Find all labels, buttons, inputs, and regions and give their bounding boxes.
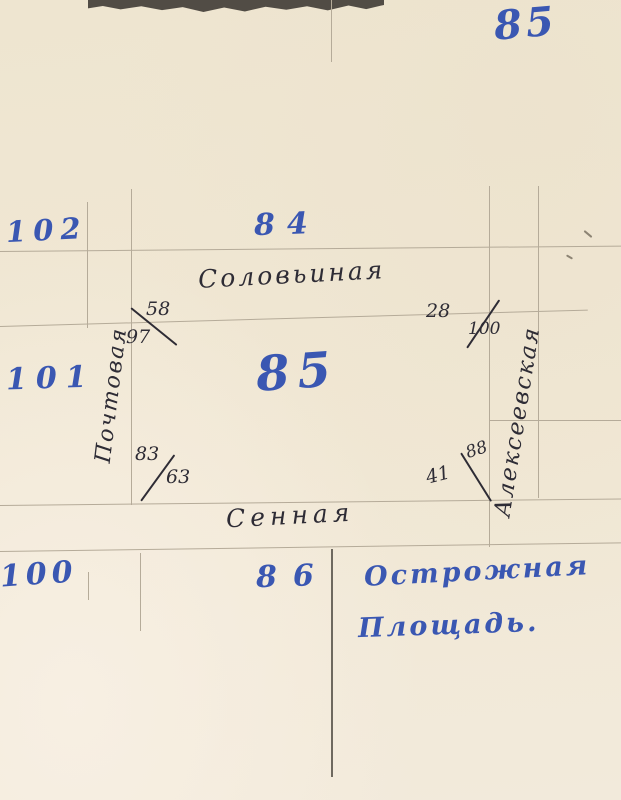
corner-number-28: 28 xyxy=(426,302,450,321)
corner-number-97: 97 xyxy=(126,328,150,347)
pencil-speck-right-2 xyxy=(566,254,573,259)
pencil-line-horizontal-below-sennaya xyxy=(0,542,621,552)
scanned-page: 85 102 84 101 85 100 86 Острожная Площад… xyxy=(0,0,621,800)
block-number-100: 100 xyxy=(0,557,79,592)
corner-number-41: 41 xyxy=(424,463,452,487)
corner-number-58: 58 xyxy=(146,300,170,319)
corner-number-100: 100 xyxy=(468,321,500,338)
corner-number-88: 88 xyxy=(464,439,490,462)
block-number-84: 84 xyxy=(253,209,320,241)
pencil-line-vertical-bottom-center-dark xyxy=(331,549,333,777)
pencil-speck-right-1 xyxy=(584,230,593,238)
page-number: 85 xyxy=(492,1,559,46)
pencil-line-horizontal-top xyxy=(0,246,621,252)
block-number-102: 102 xyxy=(5,214,88,247)
block-number-101: 101 xyxy=(6,362,97,395)
block-number-85-center: 85 xyxy=(254,345,340,399)
block-number-86: 86 xyxy=(255,561,330,594)
street-name-top: Соловьиная xyxy=(197,257,385,292)
square-label-line2: Площадь. xyxy=(358,609,540,642)
street-name-bottom: Сенная xyxy=(225,500,354,532)
pencil-tick-near-100 xyxy=(88,572,89,600)
corner-number-63: 63 xyxy=(166,468,190,487)
corner-number-83: 83 xyxy=(135,445,159,464)
square-label-line1: Острожная xyxy=(363,552,590,591)
torn-paper-edge xyxy=(88,0,384,13)
pencil-line-vertical-top-center xyxy=(331,0,332,62)
pencil-line-vertical-bottom-left xyxy=(140,553,141,631)
pencil-line-vertical-block-right-inner xyxy=(489,186,490,547)
